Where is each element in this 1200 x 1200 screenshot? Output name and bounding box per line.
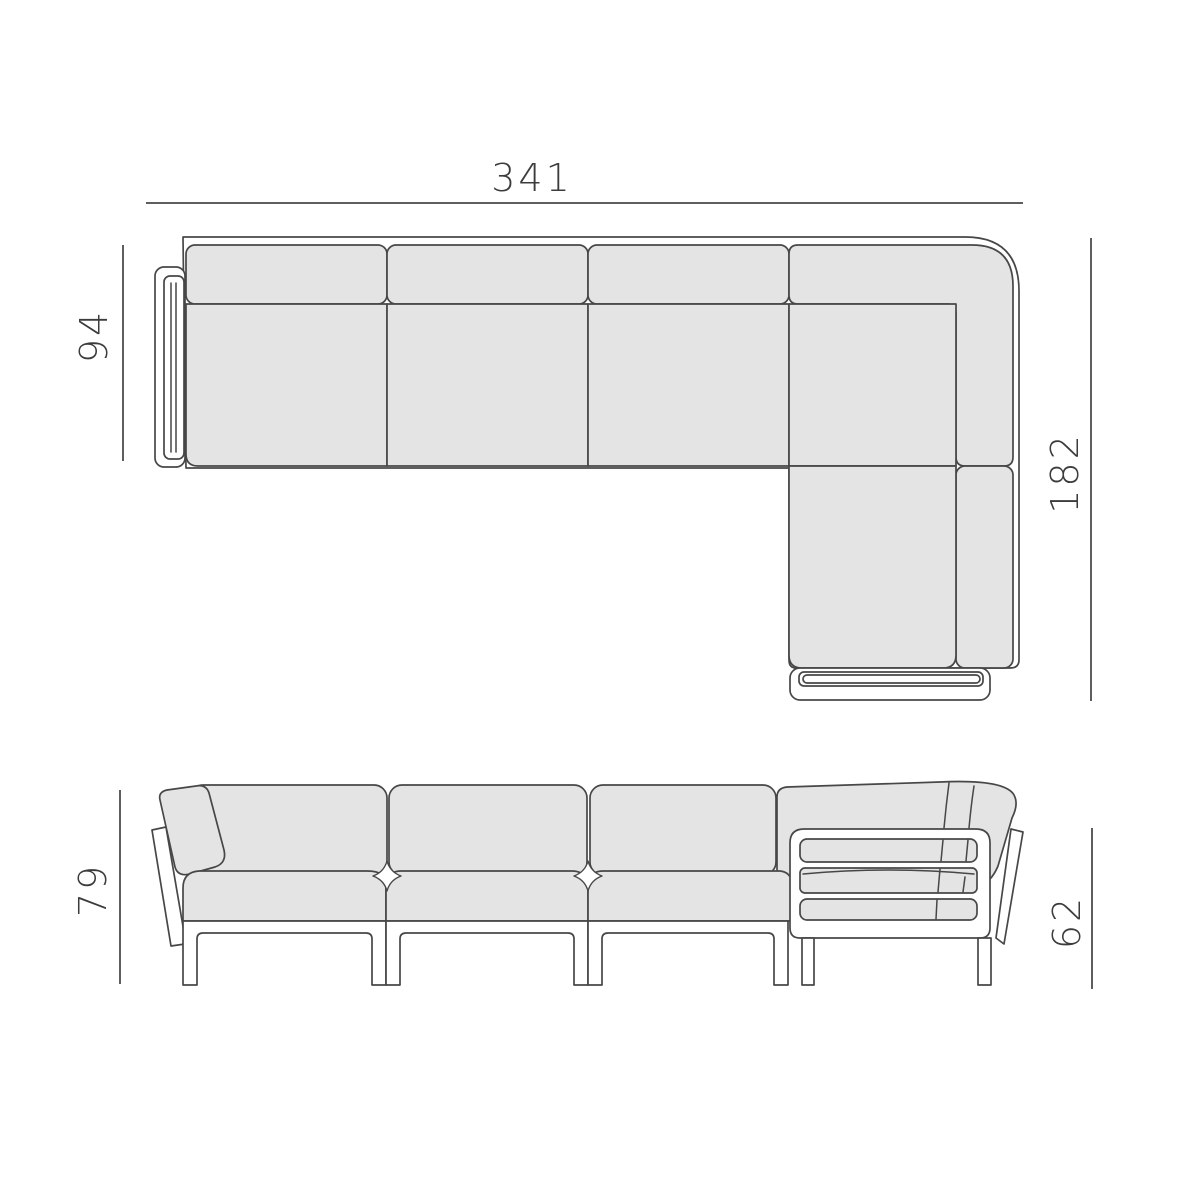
seat-cushion-3 — [588, 304, 789, 466]
base-rail-legs-3 — [588, 921, 788, 985]
backrest-cushion-chaise — [956, 466, 1013, 668]
arm-frame-opening-1 — [800, 839, 977, 862]
seat-cushion-2 — [387, 304, 588, 466]
dim-label-back-height: 79 — [71, 863, 115, 917]
seat-front-1 — [183, 871, 386, 921]
backrest-cushion-1 — [186, 245, 387, 304]
seat-front-2 — [386, 871, 588, 921]
dim-label-arm-height: 62 — [1045, 895, 1089, 949]
arm-frame-opening-3 — [800, 899, 977, 920]
chaise-arm-leg-left — [802, 938, 814, 985]
seat-cushion-chaise — [789, 466, 956, 668]
drawing-canvas: 341 94 182 79 — [0, 0, 1200, 1200]
top-view: 341 94 182 — [72, 156, 1091, 701]
back-cushion-3 — [590, 785, 776, 875]
dim-label-overall-width: 341 — [491, 156, 573, 200]
seat-cushion-corner — [789, 304, 956, 466]
left-armrest-inner — [164, 276, 184, 459]
chaise-arm-leg-right — [978, 938, 991, 985]
fold-through-opening-3a — [936, 900, 937, 919]
base-rail-legs-2 — [386, 921, 588, 985]
seat-front-3 — [588, 871, 792, 921]
backrest-cushion-2 — [387, 245, 588, 304]
dim-label-sofa-depth: 94 — [72, 309, 116, 363]
backrest-cushion-3 — [588, 245, 789, 304]
seat-cushion-1 — [186, 304, 387, 466]
sofa-dimension-drawing: 341 94 182 79 — [0, 0, 1200, 1200]
chaise-armrest-slat — [803, 675, 980, 683]
back-cushion-2 — [389, 785, 587, 875]
dim-label-chaise-depth: 182 — [1043, 432, 1087, 514]
base-rail-legs-1 — [183, 921, 386, 985]
front-view: 79 62 — [71, 782, 1092, 989]
